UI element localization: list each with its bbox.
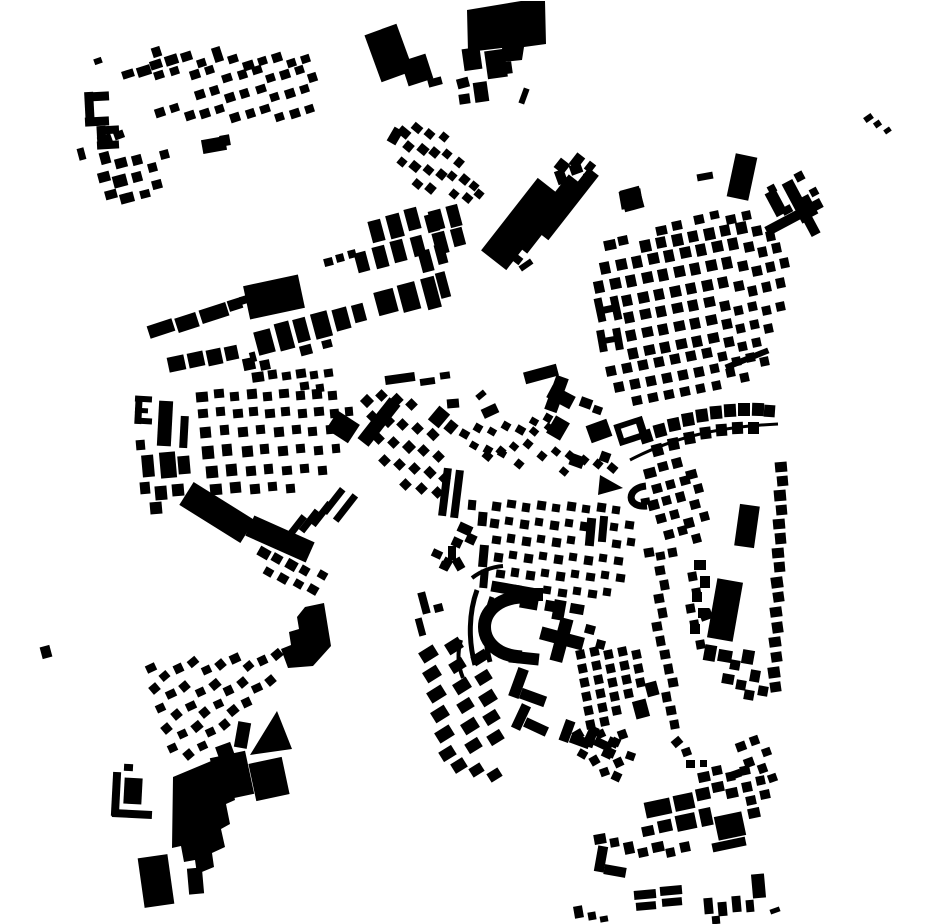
building-footprint	[298, 409, 308, 419]
building-footprint	[671, 233, 684, 247]
building-footprint	[615, 573, 625, 582]
building-footprint	[631, 255, 643, 269]
building-footprint	[523, 553, 533, 563]
building-footprint	[441, 148, 452, 159]
building-footprint	[691, 587, 701, 597]
building-footprint	[669, 353, 681, 365]
building-footprint	[587, 911, 596, 920]
building-footprint	[609, 277, 622, 290]
building-footprint	[587, 589, 597, 598]
building-footprint	[543, 413, 554, 424]
building-footprint	[481, 403, 500, 419]
building-footprint	[568, 552, 577, 561]
building-footprint	[591, 660, 602, 671]
building-footprint	[695, 787, 711, 802]
building-footprint	[211, 46, 224, 63]
building-footprint	[663, 663, 674, 674]
building-footprint	[705, 259, 718, 272]
building-footprint	[661, 372, 673, 384]
building-footprint	[99, 151, 112, 165]
building-footprint	[637, 291, 650, 304]
building-footprint	[769, 606, 782, 618]
building-footprint	[420, 377, 436, 386]
building-footprint	[579, 677, 590, 688]
building-footprint	[478, 545, 489, 568]
building-footprint	[493, 552, 503, 562]
building-footprint	[741, 649, 755, 665]
building-footprint	[665, 847, 676, 858]
building-footprint	[721, 318, 733, 330]
building-footprint	[598, 553, 607, 562]
building-footprint	[761, 747, 772, 758]
building-footprint	[199, 108, 211, 120]
building-footprint	[440, 371, 451, 379]
building-footprint	[741, 210, 752, 221]
building-footprint	[335, 253, 345, 263]
building-footprint	[613, 556, 623, 565]
building-footprint	[389, 239, 407, 264]
building-footprint	[138, 854, 175, 908]
building-footprint	[665, 479, 676, 490]
building-footprint	[761, 281, 772, 293]
building-footprint	[314, 446, 324, 456]
building-footprint	[711, 781, 725, 793]
building-footprint	[230, 482, 242, 494]
building-footprint	[77, 147, 87, 160]
building-footprint	[660, 885, 683, 896]
building-footprint	[197, 740, 209, 751]
building-footprint	[707, 332, 720, 344]
building-footprint	[286, 58, 297, 68]
building-footprint	[468, 762, 484, 777]
building-footprint	[759, 356, 770, 367]
building-footprint	[468, 500, 477, 511]
building-footprint	[104, 189, 118, 201]
building-footprint	[538, 551, 547, 560]
building-footprint	[230, 392, 240, 402]
building-footprint	[629, 378, 641, 390]
building-footprint	[430, 705, 450, 724]
building-footprint	[687, 230, 699, 243]
building-footprint	[300, 464, 310, 474]
building-footprint	[513, 458, 524, 469]
building-footprint	[615, 258, 628, 271]
building-footprint	[679, 386, 691, 397]
building-footprint	[145, 662, 157, 673]
building-footprint	[663, 389, 675, 400]
building-footprint	[508, 550, 517, 559]
building-footprint	[577, 663, 588, 674]
building-footprint	[402, 140, 415, 153]
building-footprint	[641, 271, 654, 284]
building-footprint	[653, 356, 665, 368]
building-footprint	[159, 149, 170, 160]
building-footprint	[655, 635, 666, 646]
building-footprint	[424, 182, 437, 195]
building-footprint	[540, 568, 549, 577]
building-footprint	[634, 889, 657, 900]
building-footprint	[542, 585, 551, 594]
building-footprint	[263, 392, 273, 402]
building-footprint	[411, 122, 424, 135]
building-footprint	[270, 552, 283, 565]
building-footprint	[396, 156, 407, 167]
building-footprint	[743, 689, 755, 701]
building-footprint	[204, 65, 215, 75]
building-footprint	[314, 407, 325, 417]
building-footprint	[598, 475, 623, 495]
building-footprint	[423, 466, 436, 479]
building-footprint	[739, 372, 750, 383]
building-footprint	[378, 454, 391, 467]
building-footprint	[274, 112, 285, 122]
building-footprint	[733, 305, 744, 316]
building-footprint	[699, 511, 710, 522]
building-footprint	[499, 61, 513, 75]
building-footprint	[149, 501, 162, 514]
building-footprint	[184, 110, 196, 122]
building-footprint	[566, 535, 575, 544]
building-footprint	[308, 427, 318, 437]
building-footprint	[85, 116, 109, 126]
building-footprint	[148, 682, 161, 695]
building-footprint	[422, 665, 442, 684]
building-footprint	[693, 366, 705, 378]
building-footprint	[506, 533, 515, 543]
building-footprint	[779, 257, 790, 269]
building-footprint	[224, 345, 240, 361]
building-footprint	[473, 81, 490, 103]
building-footprint	[743, 241, 755, 253]
building-footprint	[289, 108, 301, 120]
building-footprint	[669, 509, 680, 520]
building-footprint	[149, 58, 163, 70]
building-footprint	[579, 396, 594, 410]
building-footprint	[643, 547, 654, 558]
building-footprint	[276, 572, 289, 585]
building-footprint	[229, 112, 241, 124]
building-footprint	[93, 57, 103, 65]
building-footprint	[187, 351, 206, 369]
building-footprint	[250, 711, 292, 755]
building-footprint	[447, 398, 460, 408]
building-footprint	[196, 58, 207, 68]
building-footprint	[260, 444, 270, 455]
building-footprint	[767, 666, 780, 679]
building-footprint	[613, 757, 625, 769]
building-footprint	[209, 85, 220, 96]
building-footprint	[644, 681, 659, 698]
building-footprint	[725, 787, 739, 799]
building-footprint	[239, 88, 250, 99]
building-footprint	[265, 409, 276, 419]
building-footprint	[97, 171, 111, 184]
building-footprint	[584, 161, 596, 174]
building-footprint	[774, 489, 787, 501]
building-footprint	[242, 446, 254, 458]
building-footprint	[714, 811, 746, 840]
building-footprint	[251, 371, 264, 383]
building-footprint	[653, 593, 664, 604]
building-footprint	[139, 189, 151, 199]
building-footprint	[653, 288, 665, 301]
building-footprint	[769, 906, 780, 914]
building-footprint	[599, 767, 610, 778]
building-footprint	[625, 274, 637, 288]
building-footprint	[681, 412, 695, 427]
building-footprint	[657, 819, 673, 834]
building-footprint	[411, 422, 424, 435]
building-footprint	[523, 717, 549, 736]
building-footprint	[657, 461, 669, 472]
building-footprint	[171, 483, 184, 496]
building-footprint	[737, 260, 749, 272]
building-footprint	[460, 717, 480, 736]
building-footprint	[536, 450, 547, 461]
building-footprint	[689, 262, 701, 276]
building-footprint	[486, 767, 502, 782]
building-footprint	[445, 204, 462, 228]
building-footprint	[315, 383, 324, 392]
building-footprint	[583, 555, 593, 565]
building-footprint	[671, 220, 683, 231]
building-footprint	[397, 281, 422, 313]
building-footprint	[157, 401, 173, 447]
building-footprint	[501, 421, 512, 432]
building-footprint	[631, 649, 642, 660]
building-footprint	[701, 347, 713, 359]
building-footprint	[284, 88, 296, 100]
building-footprint	[529, 426, 540, 437]
building-footprint	[700, 760, 707, 767]
building-footprint	[536, 500, 546, 510]
building-footprint	[581, 691, 592, 702]
building-footprint	[711, 380, 722, 391]
building-footprint	[292, 317, 311, 344]
building-footprint	[155, 702, 167, 713]
building-footprint	[221, 73, 233, 84]
building-footprint	[767, 773, 778, 784]
building-footprint	[299, 381, 309, 390]
building-footprint	[306, 583, 319, 596]
building-footprint	[426, 428, 439, 441]
building-footprint	[418, 644, 439, 663]
building-footprint	[245, 108, 256, 119]
building-footprint	[621, 674, 632, 685]
building-footprint	[675, 491, 686, 503]
building-footprint	[584, 624, 596, 635]
building-footprint	[159, 451, 177, 478]
building-footprint	[522, 438, 533, 449]
building-footprint	[279, 69, 291, 81]
building-footprint	[577, 748, 589, 759]
building-footprint	[596, 502, 606, 512]
building-footprint	[519, 519, 529, 529]
building-footprint	[593, 833, 607, 845]
building-footprint	[671, 457, 683, 469]
building-footprint	[459, 428, 471, 439]
building-footprint	[473, 423, 484, 434]
building-footprint	[298, 564, 310, 576]
building-footprint	[655, 236, 667, 249]
building-footprint	[169, 66, 180, 76]
building-footprint	[609, 691, 620, 702]
building-footprint	[296, 444, 306, 454]
building-footprint	[703, 898, 713, 915]
building-footprint	[504, 516, 513, 525]
building-footprint	[474, 669, 493, 686]
building-footprint	[495, 569, 505, 578]
building-footprint	[747, 807, 761, 819]
building-footprint	[751, 873, 766, 898]
building-footprint	[801, 213, 820, 237]
building-footprint	[450, 227, 466, 247]
building-footprint	[257, 56, 268, 66]
building-footprint	[304, 104, 315, 114]
building-footprint	[695, 243, 707, 257]
building-footprint	[450, 470, 464, 519]
building-footprint	[749, 319, 760, 330]
building-footprint	[431, 548, 443, 559]
building-footprint	[281, 371, 291, 380]
building-footprint	[625, 751, 636, 762]
building-footprint	[566, 501, 576, 511]
building-footprint	[198, 409, 209, 419]
building-footprint	[603, 649, 614, 660]
building-footprint	[602, 587, 611, 596]
building-footprint	[293, 578, 305, 589]
building-footprint	[679, 841, 691, 853]
building-footprint	[689, 317, 701, 330]
building-footprint	[135, 396, 152, 403]
building-footprint	[752, 403, 764, 416]
building-footprint	[415, 617, 426, 636]
building-footprint	[809, 187, 820, 198]
figure-ground-map	[0, 0, 930, 924]
building-footprint	[224, 92, 236, 104]
building-footprint	[523, 364, 559, 384]
building-footprint	[198, 706, 211, 719]
building-footprint	[757, 685, 769, 697]
building-footprint	[764, 405, 776, 418]
building-footprint	[85, 91, 109, 101]
building-footprint	[173, 663, 185, 675]
building-footprint	[636, 901, 657, 911]
building-footprint	[735, 741, 747, 753]
building-footprint	[659, 649, 670, 660]
building-footprint	[653, 423, 668, 439]
building-footprint	[402, 440, 416, 454]
building-footprint	[553, 554, 563, 564]
building-footprint	[286, 484, 296, 494]
building-footprint	[229, 652, 242, 664]
building-footprint	[581, 504, 590, 513]
building-footprint	[136, 64, 152, 78]
building-footprint	[727, 153, 758, 201]
building-footprint	[659, 341, 671, 354]
building-footprint	[589, 646, 600, 657]
building-footprint	[443, 419, 458, 435]
building-footprint	[141, 455, 155, 478]
building-footprint	[385, 372, 416, 385]
building-footprint	[426, 684, 447, 703]
building-footprint	[405, 398, 418, 411]
building-footprint	[428, 146, 441, 159]
building-footprint	[147, 162, 158, 173]
building-footprint	[721, 256, 733, 270]
building-footprint	[491, 535, 501, 544]
building-footprint	[585, 518, 596, 547]
building-footprint	[711, 765, 723, 776]
building-footprint	[697, 172, 714, 182]
building-footprint	[727, 237, 739, 251]
building-footprint	[639, 239, 652, 253]
building-footprint	[453, 156, 465, 168]
building-footprint	[448, 546, 456, 560]
building-footprint	[551, 537, 561, 547]
building-footprint	[717, 902, 727, 917]
building-footprint	[292, 425, 302, 435]
building-footprint	[695, 408, 709, 423]
building-footprint	[195, 686, 207, 697]
building-outline-path	[631, 486, 647, 506]
building-footprint	[165, 688, 177, 699]
building-footprint	[654, 565, 665, 576]
building-footprint	[575, 649, 586, 660]
building-footprint	[551, 503, 560, 512]
building-footprint	[693, 483, 704, 494]
building-footprint	[264, 464, 274, 475]
building-footprint	[469, 440, 479, 450]
building-footprint	[623, 841, 635, 855]
building-footprint	[296, 391, 306, 401]
building-footprint	[657, 268, 669, 282]
building-footprint	[521, 536, 531, 546]
building-footprint	[432, 450, 445, 463]
building-footprint	[190, 720, 203, 733]
building-footprint	[621, 362, 633, 374]
building-footprint	[221, 444, 232, 457]
building-footprint	[323, 368, 333, 377]
building-footprint	[686, 760, 695, 768]
building-footprint	[475, 389, 487, 400]
building-footprint	[151, 46, 163, 58]
building-footprint	[774, 562, 786, 573]
building-footprint	[310, 310, 333, 340]
building-footprint	[263, 566, 275, 577]
building-footprint	[218, 718, 231, 731]
building-footprint	[236, 676, 249, 689]
building-footprint	[194, 89, 206, 101]
building-footprint	[242, 660, 254, 672]
building-footprint	[675, 338, 688, 350]
building-footprint	[225, 464, 237, 477]
building-footprint	[491, 501, 501, 511]
building-footprint	[124, 764, 133, 771]
building-footprint	[768, 636, 781, 648]
building-footprint	[268, 482, 278, 492]
building-footprint	[259, 359, 271, 371]
building-footprint	[281, 407, 291, 417]
building-footprint	[671, 736, 684, 749]
building-footprint	[506, 499, 516, 508]
building-footprint	[735, 323, 746, 334]
building-footprint	[748, 422, 759, 434]
building-footprint	[200, 427, 212, 439]
building-footprint	[643, 467, 657, 480]
building-footprint	[725, 771, 736, 782]
building-footprint	[691, 533, 702, 544]
